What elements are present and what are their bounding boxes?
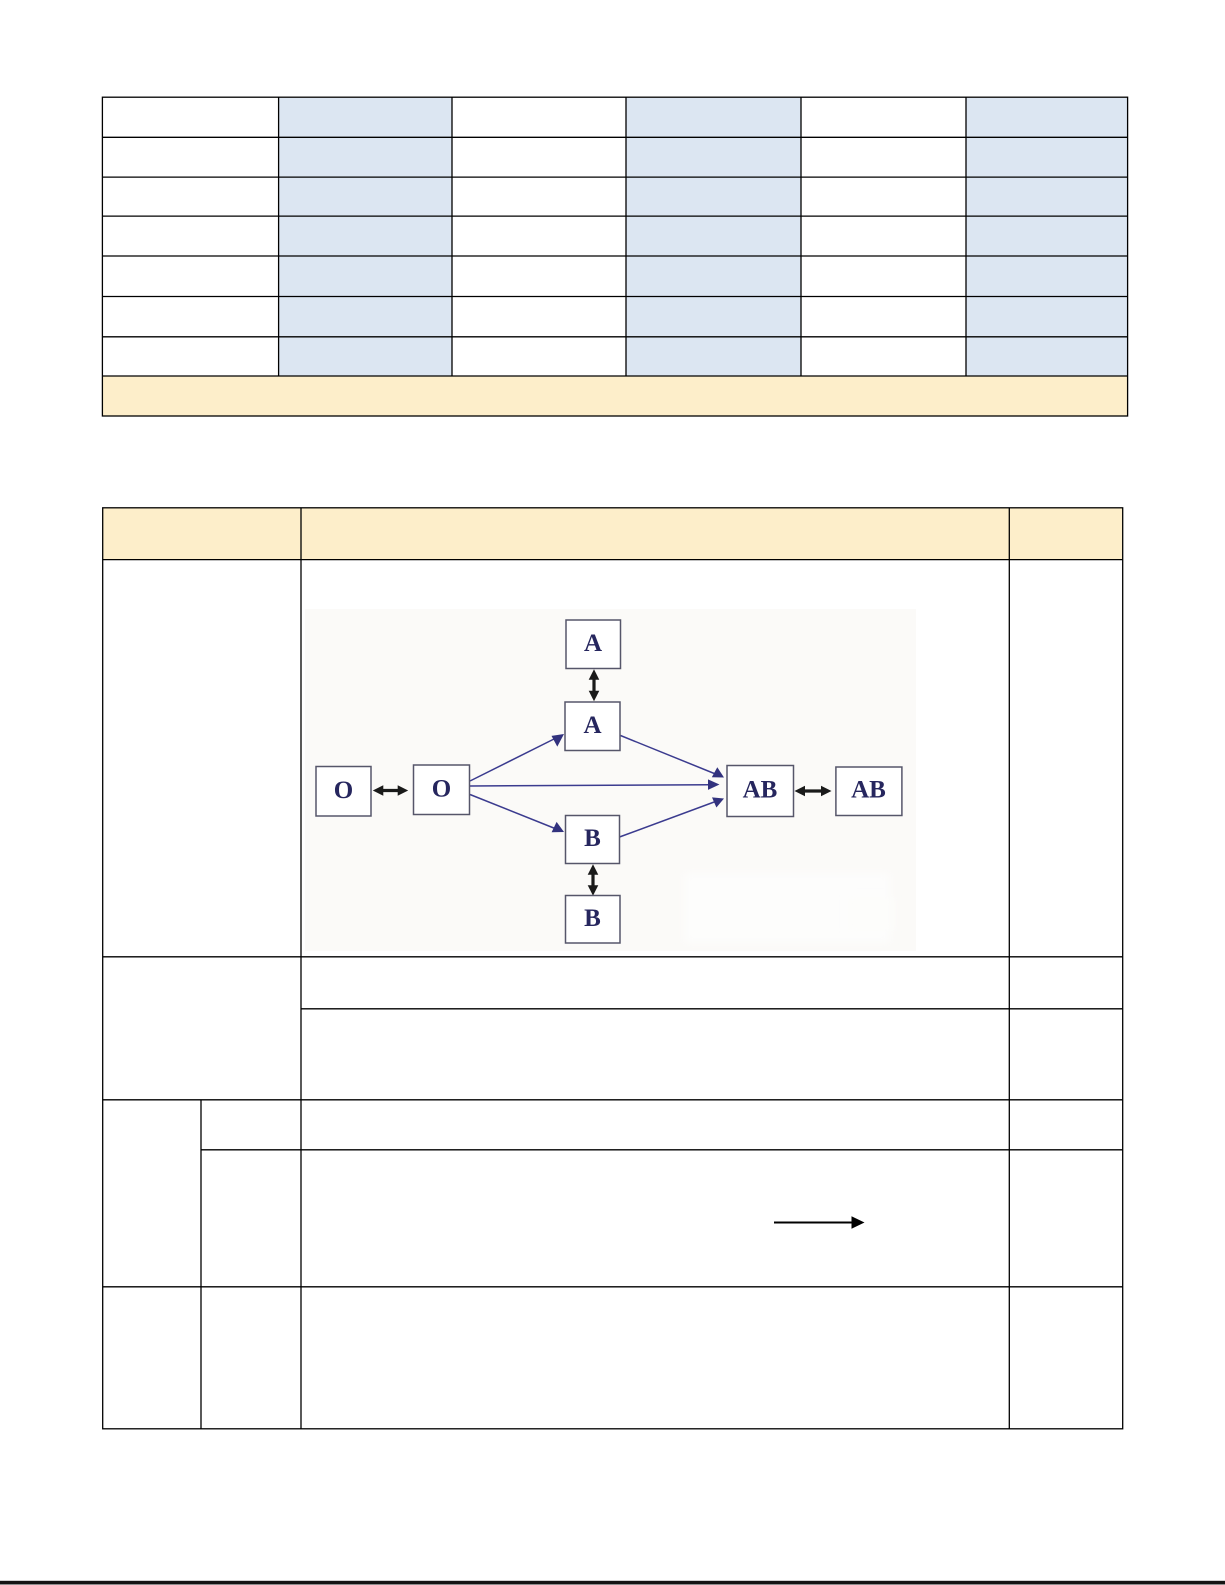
svg-text:A: A — [583, 712, 601, 739]
svg-text:B: B — [584, 825, 601, 852]
svg-text:O: O — [432, 776, 451, 803]
svg-text:A: A — [584, 630, 602, 657]
svg-text:AB: AB — [743, 777, 778, 804]
svg-text:AB: AB — [851, 777, 886, 804]
svg-text:B: B — [584, 905, 601, 932]
svg-text:O: O — [334, 777, 353, 804]
